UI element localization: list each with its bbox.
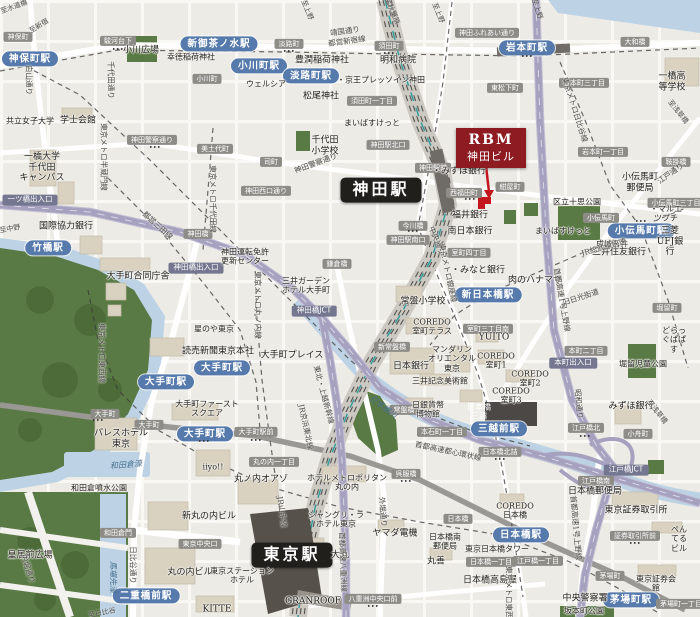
place-label: 常盤小学校 (400, 297, 445, 308)
place-label: 皇居前広場 (7, 551, 52, 562)
road-label: 小伝馬町 (583, 213, 619, 223)
place-label: 小川広場 (123, 46, 159, 57)
place-label: 幸徳稲荷神社 (167, 52, 215, 61)
road-label: 須田町 (375, 41, 404, 51)
line-label: 東京メトロ日比谷線 (559, 77, 588, 144)
crosswalk-dots: ••• (494, 456, 506, 463)
road-label: 西福田町 (446, 188, 482, 198)
place-label: 三井住友銀行 (592, 248, 646, 259)
place-label: 神田運転免許 更新センター (221, 248, 269, 267)
station-badge-nijubashimae: 二重橋前駅 (113, 588, 180, 603)
place-label: マンダリン オリエンタル 東京 (428, 345, 476, 373)
road-label: 小舟町 (624, 429, 653, 439)
place-label: 日本橋南 郵便局 (429, 533, 461, 552)
place-label: COREDO 室町1 (477, 352, 515, 371)
station-badge-tokyo: 東京駅 (251, 543, 332, 568)
line-label: 東京メトロ半蔵門線 (99, 123, 108, 191)
place-label: 東京証券会館 (634, 575, 678, 594)
place-label: 日銀貨幣 博物館 (412, 401, 444, 420)
direction-label: 至浅草橋 (666, 98, 690, 125)
line-label: 首都高速八重洲線 (337, 532, 348, 592)
road-label: 紺屋町 (496, 182, 525, 192)
road-label: 岩本町三丁目 (559, 78, 609, 88)
road-label: 神田駅前 (415, 163, 451, 173)
place-label: COREDO 室町3 (492, 387, 530, 406)
place-label: 日本橋郵便局 (568, 487, 622, 498)
line-label: 東京メトロ銀座線 (436, 243, 457, 304)
road-label: 室町三丁目南 (463, 324, 513, 334)
line-label: 神田警察通り (293, 152, 338, 176)
line-label: 靖国通り (330, 26, 361, 39)
place-label: パレスホテル 東京 (94, 428, 148, 449)
place-label: ・京王プレッソイン神田 (337, 75, 425, 84)
line-label: 東北・上越新幹線 (311, 365, 335, 425)
line-label: 都営三田線 (140, 210, 174, 242)
station-badge-otemachi-3: 大手町駅 (177, 426, 233, 441)
road-label: 大和橋 (621, 37, 650, 47)
station-badge-jimbocho: 神保町駅 (2, 51, 58, 66)
place-label: ・みなと銀行 (451, 266, 505, 277)
crosswalk-dots: ••• (464, 196, 476, 203)
road-label: 茅場町 (596, 571, 625, 581)
crosswalk-dots: ••• (521, 53, 533, 60)
road-label: 淡路町 (275, 39, 304, 49)
place-label: 一橋大学 千代田 キャンパス (19, 152, 64, 184)
road-label: 鎌倉橋 (323, 259, 352, 269)
road-label: 東京中央口 (179, 539, 222, 549)
place-label: 坂本町公園 (564, 606, 604, 615)
station-badge-otemachi-2: 大手町駅 (138, 374, 194, 389)
place-label: 福井銀行 (452, 211, 488, 222)
place-label: 豊潤稲荷神社 (295, 56, 349, 67)
place-label: 共立女子大学 (6, 116, 54, 125)
water-label: 日本橋川 (367, 393, 398, 420)
place-label: 肉のハナマサ (508, 276, 562, 287)
station-badge-kodemmacho: 小伝馬町駅 (608, 223, 675, 238)
line-label: 都営新宿線 (328, 35, 366, 49)
road-label: 丸の内一丁目 (249, 457, 299, 467)
place-label: 星のや東京 (194, 324, 234, 333)
place-label: 丸の内ビル (167, 568, 212, 579)
direction-label: 至浅草橋 (645, 398, 669, 425)
place-label: 大丸 (331, 551, 349, 562)
station-badge-iwamotocho: 岩本町駅 (499, 40, 555, 55)
place-label: 大手町プレイス (261, 351, 324, 362)
place-label: GRANROOF (285, 597, 341, 608)
crosswalk-dots: ••• (198, 438, 210, 445)
place-label: 三井ガーデン ホテル大手町 (282, 277, 330, 296)
place-label: 三菱UFJ銀行 (655, 226, 685, 258)
line-label: 内堀通り (18, 553, 36, 584)
road-label: 神田警察通り (127, 135, 177, 145)
line-label: 日比谷通り (128, 546, 137, 584)
place-label: 日本橋高島屋 (463, 576, 517, 587)
place-label: 南日本銀行 (447, 227, 492, 238)
crosswalk-dots: ••• (250, 437, 262, 444)
crosswalk-dots: ••• (635, 218, 647, 225)
crosswalk-dots: ••• (383, 50, 395, 57)
place-label: ・マルエツプチ (649, 205, 683, 224)
road-label: 大手町駅前 (235, 427, 278, 437)
crosswalk-dots: ••• (400, 478, 412, 485)
place-label: 日本銀行 (393, 362, 429, 373)
place-label: 新丸の内ビル (182, 512, 236, 523)
road-label: 江戸橋一丁目 (513, 556, 563, 566)
target-building-badge: RBM 神田ビル (456, 128, 526, 168)
road-label: 江戸橋南 (578, 476, 614, 486)
road-label: 大手町 (135, 420, 164, 430)
crosswalk-dots: ••• (629, 540, 641, 547)
station-badge-nihombashi: 日本橋駅 (493, 527, 549, 542)
road-label: 神田橋 (184, 229, 213, 239)
target-line1: RBM (467, 132, 515, 148)
road-label: 和田倉門 (100, 528, 136, 538)
road-label: 美土代町 (197, 144, 233, 154)
direction-label: 至上野 (299, 0, 315, 21)
road-label: 駿河台下 (100, 36, 136, 46)
direction-label: 至水道橋 (0, 0, 29, 16)
direction-label: 至上野 (530, 0, 544, 20)
place-label: 丸善 (427, 557, 445, 568)
line-label: JR総武線快速 (581, 237, 628, 258)
place-label: 三井記念美術館 (412, 376, 468, 385)
direction-label: 至中野 (0, 223, 21, 235)
station-badge-shin-ochanomizu: 新御茶ノ水駅 (180, 36, 257, 51)
labels-layer: 神保町駅新御茶ノ水駅小川町駅淡路町駅岩本町駅竹橋駅大手町駅大手町駅大手町駅小伝馬… (0, 0, 700, 617)
place-label: みずほ銀行 (608, 402, 653, 413)
crosswalk-dots: ••• (407, 228, 419, 235)
road-label: 茅場町一丁目 (656, 599, 700, 609)
highway-label: 神田橋JCT (292, 306, 337, 317)
road-label: 東松下町 (487, 83, 523, 93)
water-label: 和田倉濠 (110, 459, 143, 471)
place-label: COREDO 室町2 (511, 370, 549, 389)
direction-label: 至上野 (430, 2, 446, 25)
road-label: 小川町 (193, 74, 222, 84)
place-label: 一橋高等学校 (658, 71, 686, 92)
line-label: 江戸通り (656, 162, 686, 186)
road-label: 神田駅南口 (387, 235, 430, 245)
direction-label: 至秋葉原 (383, 0, 401, 26)
direction-label: 至新宿 (28, 17, 50, 35)
road-label: 岩本町一丁目 (578, 147, 628, 157)
road-label: 須田町一丁目 (347, 96, 397, 106)
road-label: 神田駅北口 (367, 140, 410, 150)
line-label: 昭和通り (572, 389, 583, 420)
road-label: 神保町 (4, 32, 33, 42)
place-label: 丸ノ内オアゾ (234, 475, 288, 486)
crosswalk-dots: ••• (579, 433, 591, 440)
place-label: 東京日本橋タワー (465, 544, 529, 553)
place-label: 大手町ファースト スクエア (175, 400, 239, 419)
station-badge-mitsukoshimae: 三越前駅 (471, 421, 527, 436)
road-label: 日本橋 (444, 514, 473, 524)
road-label: 証券取引所前 (610, 531, 660, 541)
crosswalk-dots: ••• (283, 48, 295, 55)
road-label: 日本橋一丁目 (466, 557, 516, 567)
place-label: 千代田 小学校 (311, 135, 338, 156)
place-label: ウェルシア (246, 79, 286, 88)
line-label: 白山通り (24, 65, 33, 95)
road-label: 今川橋 (399, 221, 428, 231)
road-label: 常盤橋 (390, 405, 419, 415)
line-label: 首都高速1号上野線 (551, 267, 571, 332)
place-label: まいばすけっと (535, 226, 591, 235)
crosswalk-dots: ••• (92, 417, 104, 424)
target-line2: 神田ビル (467, 148, 515, 164)
place-label: 小伝馬町 郵便局 (622, 172, 658, 193)
place-label: ぺんてるビル (669, 525, 690, 553)
line-label: 東京メトロ東西線 (97, 323, 106, 383)
crosswalk-dots: ••• (112, 46, 124, 53)
road-label: 大手町 (91, 409, 120, 419)
road-label: 本石町一丁目 (417, 427, 467, 437)
direction-label: 至日比谷 (87, 606, 116, 617)
place-label: iiyo!! (203, 462, 224, 471)
station-badge-shin-nihombashi: 新日本橋駅 (455, 287, 522, 302)
line-label: 東京メトロ丸ノ内線 (253, 271, 262, 339)
place-label: 大手町合同庁舎 (106, 272, 169, 283)
highway-label: 神田橋出入口 (169, 263, 224, 274)
road-label: 室町四丁目 (448, 248, 491, 258)
place-label: 東京証券取引所 (604, 506, 667, 517)
place-label: 和田倉噴水公園 (71, 483, 127, 492)
place-label: どらっぐぱぱす (661, 326, 687, 354)
place-label: 堀留児童公園 (619, 359, 667, 368)
road-label: 小伝馬町三丁目 (648, 198, 700, 208)
line-label: 旧日光街道 (562, 288, 600, 308)
road-label: 日本橋北詰 (479, 447, 522, 457)
line-label: JR京浜東北線 (296, 404, 314, 451)
crosswalk-dots: ••• (149, 144, 161, 151)
place-label: 松尾神社 (303, 92, 339, 103)
road-label: 神田西口通り (241, 186, 291, 196)
highway-label: 江戸橋JCT (604, 465, 649, 476)
place-label: 学士会館 (60, 116, 96, 127)
highway-label: 一ツ橋出入口 (3, 195, 58, 206)
line-label: 首都高速都心環状線 (414, 441, 482, 464)
line-label: 外堀通り (376, 497, 387, 528)
place-label: 明和病院 (380, 56, 416, 67)
station-badge-kanda: 神田駅 (340, 178, 421, 203)
crosswalk-dots: ••• (367, 603, 379, 610)
place-label: シャングリ・ラ ホテル東京 (308, 511, 364, 530)
road-label: 江戸橋北 (568, 423, 604, 433)
place-label: 国際協力銀行 (39, 222, 93, 233)
place-label: COREDO 日本橋 (496, 502, 534, 521)
place-label: ヤマダ電機 (372, 529, 417, 540)
water-label: 馬場先濠 (108, 561, 117, 593)
station-badge-kayabacho: 茅場町駅 (603, 592, 659, 607)
line-label: 東京メトロ東西線 (504, 566, 513, 617)
station-badge-otemachi-1: 大手町駅 (194, 360, 250, 375)
road-label: 神田ふれあい通り (455, 28, 519, 38)
place-label: ・みずほ銀行 (432, 167, 486, 178)
place-label: 成城石井 (596, 239, 628, 248)
road-label: 司町 (260, 157, 282, 167)
road-label: 新常盤橋 (374, 342, 410, 352)
highway-label: 本町出入口 (549, 358, 597, 369)
road-label: 本町二丁目 (565, 346, 608, 356)
place-label: 読売新聞東京本社 (182, 347, 254, 358)
place-label: COREDO 室町テラス (412, 318, 452, 337)
place-label: 中央警察署 (562, 594, 607, 605)
place-label: ホテルメトロポリタン 丸の内 (307, 474, 387, 493)
map-canvas: 神保町駅新御茶ノ水駅小川町駅淡路町駅岩本町駅竹橋駅大手町駅大手町駅大手町駅小伝馬… (0, 0, 700, 617)
road-label: 堀留町 (653, 303, 682, 313)
place-label: KITTE (202, 605, 231, 616)
line-label: 千代田通り (106, 61, 115, 99)
place-label: YUITO (479, 333, 509, 344)
line-label: JR山手線 (274, 496, 287, 528)
place-label: 日本橋 三越 (467, 403, 491, 422)
road-label: 呉服橋 (392, 469, 421, 479)
line-label: 中央通り (426, 225, 445, 256)
station-badge-awajicho: 淡路町駅 (283, 68, 339, 83)
place-label: まいばすけっと (344, 118, 400, 127)
road-label: 八重洲中央口前 (345, 594, 402, 604)
station-badge-takebashi: 竹橋駅 (25, 240, 71, 255)
road-label: 鞍掛橋 (662, 157, 691, 167)
line-label: 首都高速1号上野線 (568, 495, 582, 560)
line-label: 東京メトロ千代田線 (208, 165, 217, 233)
station-badge-ogawamachi: 小川町駅 (231, 58, 287, 73)
place-label: 東京ステーション ホテル (210, 567, 274, 586)
place-label: 区立十思公園 (553, 197, 601, 206)
